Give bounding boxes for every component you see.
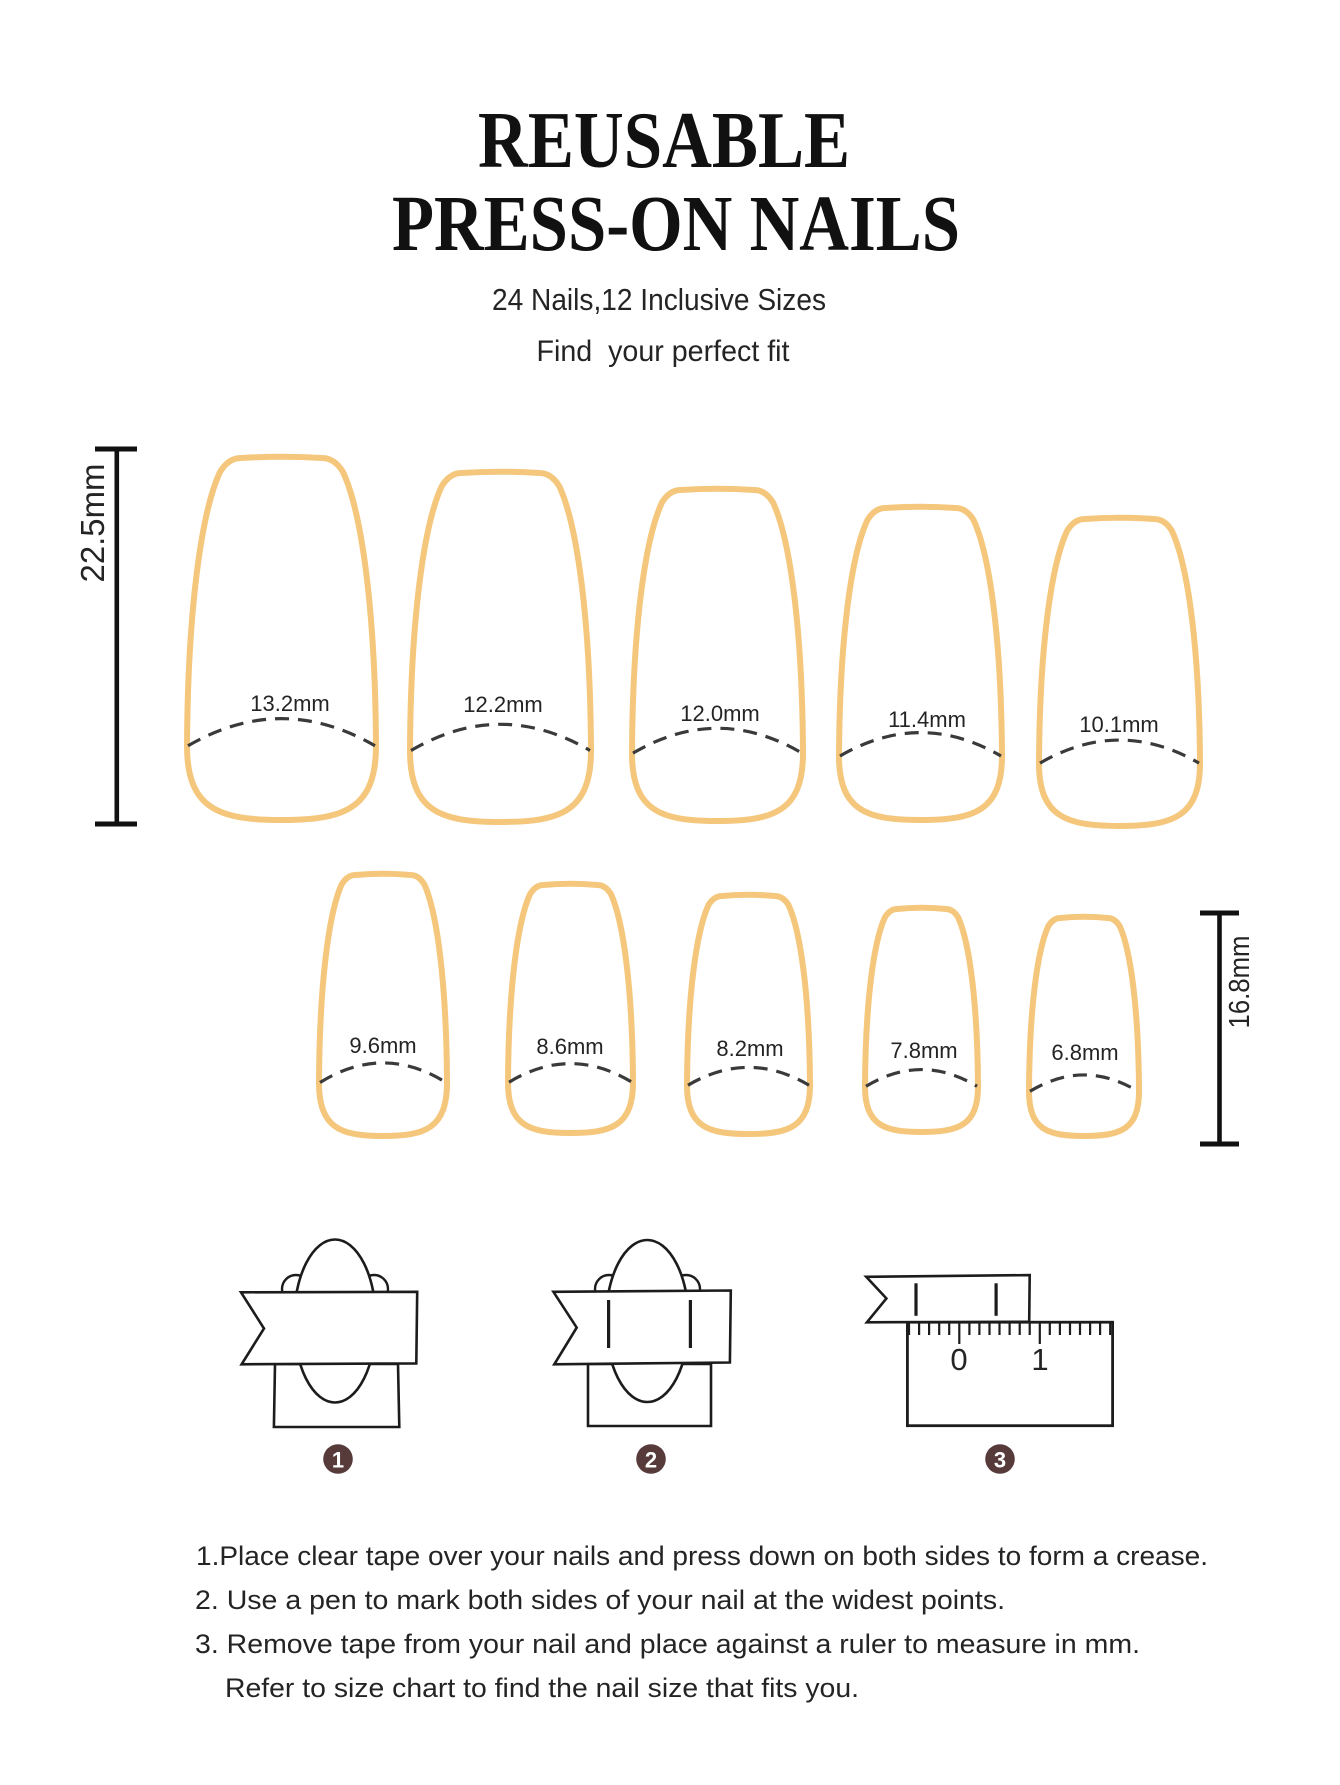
svg-text:16.8mm: 16.8mm — [1224, 936, 1256, 1029]
svg-text:REUSABLE: REUSABLE — [478, 97, 850, 185]
svg-text:PRESS-ON NAILS: PRESS-ON NAILS — [392, 181, 960, 268]
svg-text:0: 0 — [950, 1342, 967, 1377]
svg-text:1: 1 — [332, 1448, 344, 1473]
svg-text:8.2mm: 8.2mm — [716, 1036, 783, 1061]
svg-text:Find your perfect fit: Find your perfect fit — [537, 335, 791, 368]
svg-text:1.Place clear tape over your n: 1.Place clear tape over your nails and p… — [196, 1541, 1208, 1571]
svg-text:8.6mm: 8.6mm — [536, 1034, 603, 1059]
svg-text:11.4mm: 11.4mm — [888, 707, 966, 732]
svg-text:12.0mm: 12.0mm — [680, 701, 759, 726]
svg-text:Refer to size chart to find th: Refer to size chart to find the nail siz… — [225, 1673, 859, 1703]
svg-text:24 Nails,12 Inclusive Sizes: 24 Nails,12 Inclusive Sizes — [492, 282, 826, 317]
svg-text:6.8mm: 6.8mm — [1051, 1040, 1118, 1065]
svg-text:12.2mm: 12.2mm — [463, 692, 542, 717]
svg-text:3: 3 — [994, 1448, 1006, 1473]
svg-text:9.6mm: 9.6mm — [349, 1033, 416, 1058]
svg-text:3. Remove tape from your nail: 3. Remove tape from your nail and place … — [195, 1629, 1140, 1659]
svg-text:2: 2 — [645, 1448, 657, 1473]
svg-text:22.5mm: 22.5mm — [74, 464, 111, 583]
svg-text:7.8mm: 7.8mm — [890, 1038, 957, 1063]
svg-text:13.2mm: 13.2mm — [250, 691, 329, 716]
svg-text:2. Use a pen to mark both side: 2. Use a pen to mark both sides of your … — [195, 1585, 1005, 1615]
svg-text:10.1mm: 10.1mm — [1079, 712, 1158, 737]
svg-text:1: 1 — [1031, 1342, 1048, 1377]
